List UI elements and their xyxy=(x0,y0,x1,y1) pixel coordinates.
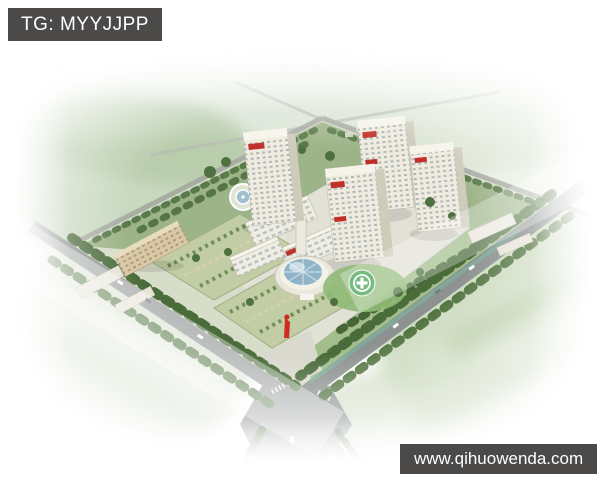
screenshot-canvas: TG: MYYJJPP www.qihuowenda.com xyxy=(0,0,600,480)
tower-right xyxy=(409,141,470,232)
tower-mid xyxy=(325,163,394,263)
tower-left xyxy=(243,127,305,226)
red-sculpture xyxy=(284,315,290,339)
website-watermark: www.qihuowenda.com xyxy=(400,444,597,474)
aerial-rendering xyxy=(0,0,600,480)
source-tag-label: TG: MYYJJPP xyxy=(8,8,162,41)
